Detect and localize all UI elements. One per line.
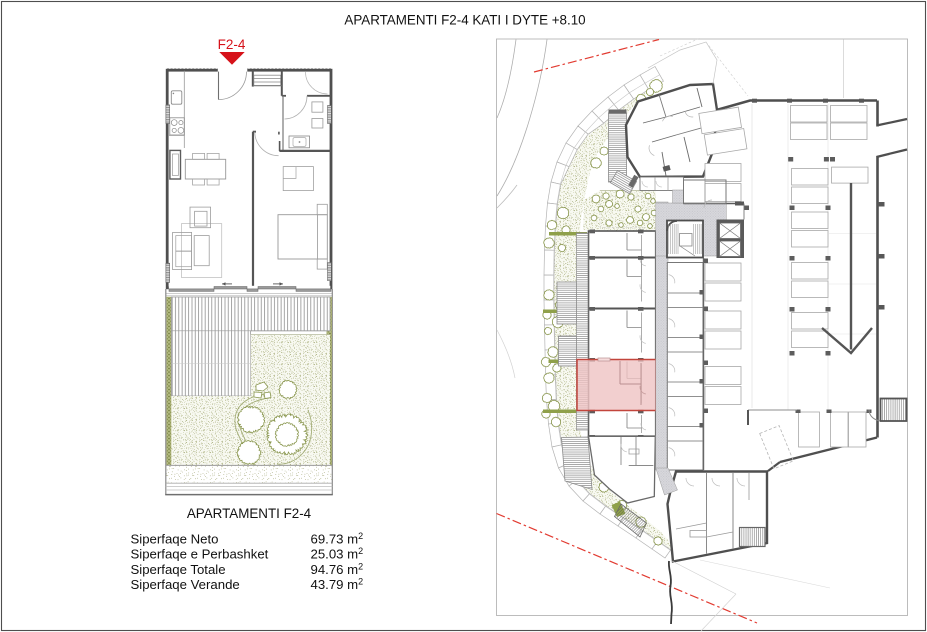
svg-text:Siperfaqe Verande: Siperfaqe Verande [131,577,240,592]
svg-text:Siperfaqe Neto: Siperfaqe Neto [131,532,219,547]
svg-text:Siperfaqe e Perbashket: Siperfaqe e Perbashket [131,547,269,562]
svg-text:Siperfaqe Totale: Siperfaqe Totale [131,562,226,577]
svg-text:69.73 m2: 69.73 m2 [311,531,364,547]
svg-text:APARTAMENTI F2-4 KATI I DYTE +: APARTAMENTI F2-4 KATI I DYTE +8.10 [344,13,585,28]
svg-text:APARTAMENTI F2-4: APARTAMENTI F2-4 [187,506,312,521]
svg-text:94.76 m2: 94.76 m2 [311,561,364,577]
svg-text:25.03 m2: 25.03 m2 [311,546,364,562]
svg-text:F2-4: F2-4 [218,37,246,52]
svg-text:43.79 m2: 43.79 m2 [311,577,364,593]
